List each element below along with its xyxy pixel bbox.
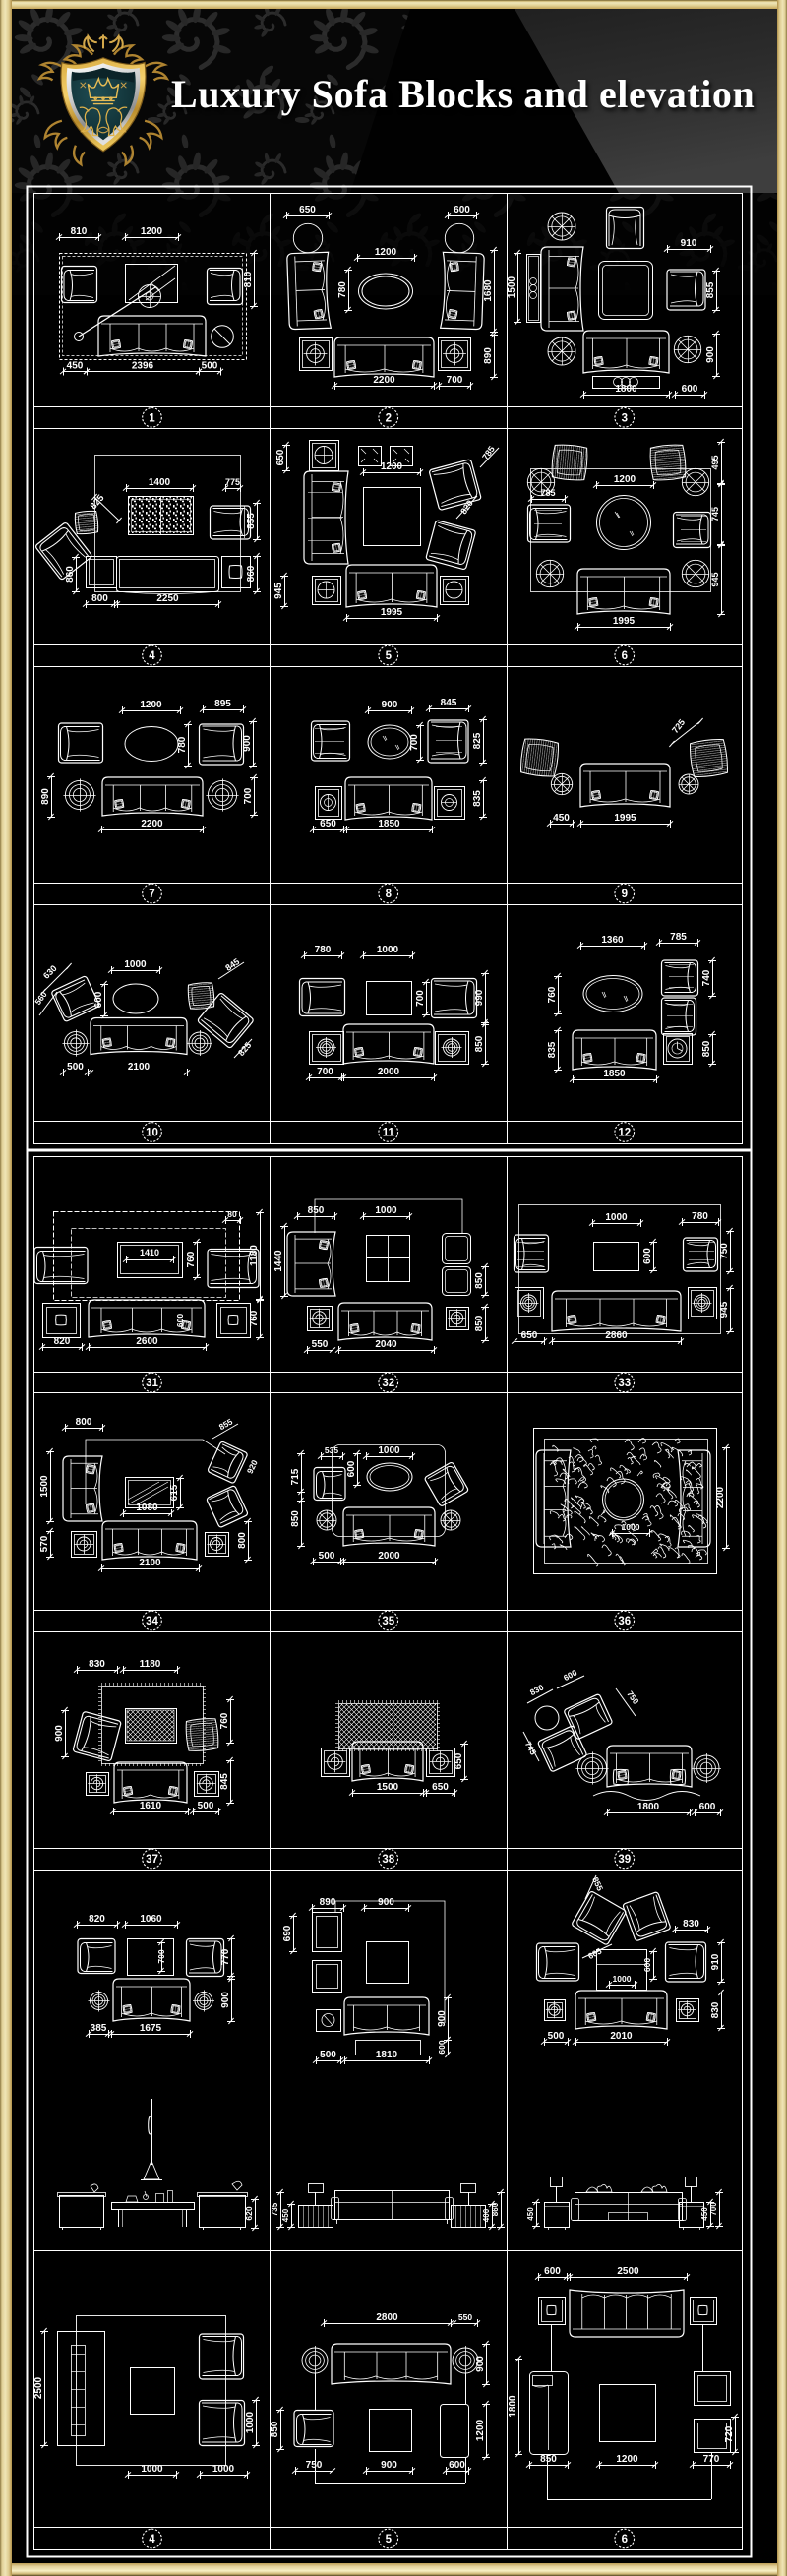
svg-text:750: 750 [625, 1689, 640, 1707]
svg-text:1800: 1800 [637, 1802, 660, 1812]
svg-text:2250: 2250 [156, 593, 179, 604]
svg-text:2000: 2000 [378, 1551, 400, 1562]
svg-text:32: 32 [382, 1378, 394, 1389]
svg-text:770: 770 [220, 1948, 231, 1965]
svg-text:850: 850 [290, 1510, 301, 1527]
svg-text:8: 8 [386, 889, 393, 900]
svg-text:745: 745 [523, 1740, 539, 1756]
svg-text:890: 890 [320, 1897, 336, 1908]
svg-text:825: 825 [89, 492, 107, 512]
svg-text:1000: 1000 [124, 959, 147, 970]
svg-text:600: 600 [437, 2040, 447, 2054]
svg-text:850: 850 [540, 2454, 557, 2465]
svg-text:650: 650 [275, 449, 286, 465]
svg-text:1200: 1200 [140, 700, 162, 710]
svg-text:1440: 1440 [273, 1250, 284, 1272]
svg-text:830: 830 [89, 1659, 105, 1670]
svg-text:1060: 1060 [140, 1914, 162, 1925]
svg-text:2200: 2200 [141, 819, 163, 829]
svg-text:895: 895 [214, 699, 231, 709]
svg-text:890: 890 [483, 347, 494, 364]
svg-text:500: 500 [202, 361, 218, 372]
svg-text:1200: 1200 [375, 247, 397, 258]
svg-text:570: 570 [39, 1535, 50, 1552]
svg-text:990: 990 [474, 989, 485, 1006]
svg-text:2800: 2800 [376, 2312, 398, 2323]
svg-text:785: 785 [670, 932, 687, 943]
svg-text:1200: 1200 [475, 2419, 486, 2441]
svg-text:12: 12 [618, 1128, 631, 1139]
svg-text:11: 11 [383, 1128, 395, 1139]
svg-text:1200: 1200 [381, 461, 403, 472]
svg-text:550: 550 [312, 1339, 329, 1350]
svg-text:1360: 1360 [601, 935, 624, 946]
svg-text:800: 800 [91, 593, 108, 604]
svg-text:900: 900 [378, 1897, 394, 1908]
svg-text:3: 3 [622, 412, 628, 424]
svg-text:850: 850 [270, 2421, 280, 2437]
svg-text:1800: 1800 [508, 2395, 518, 2418]
svg-text:1995: 1995 [381, 607, 403, 618]
svg-text:1000: 1000 [378, 1445, 400, 1456]
svg-text:600: 600 [346, 1460, 357, 1477]
svg-text:2100: 2100 [139, 1558, 161, 1568]
svg-text:650: 650 [320, 819, 336, 829]
svg-text:5: 5 [386, 2534, 393, 2545]
svg-text:1500: 1500 [39, 1475, 50, 1498]
svg-text:450: 450 [553, 813, 570, 824]
svg-text:600: 600 [562, 1667, 578, 1683]
svg-text:1995: 1995 [614, 813, 636, 824]
svg-text:850: 850 [474, 1315, 485, 1331]
svg-text:2: 2 [386, 412, 392, 424]
svg-text:690: 690 [282, 1925, 293, 1941]
svg-text:900: 900 [705, 346, 716, 363]
svg-text:700: 700 [709, 2202, 718, 2216]
svg-text:825: 825 [236, 1040, 253, 1058]
svg-text:560: 560 [32, 989, 48, 1007]
svg-text:1675: 1675 [140, 2023, 162, 2034]
svg-text:600: 600 [454, 205, 470, 215]
svg-text:900: 900 [242, 735, 253, 752]
svg-text:700: 700 [156, 1949, 166, 1963]
svg-text:600: 600 [175, 1314, 185, 1327]
svg-text:1400: 1400 [149, 477, 171, 488]
svg-text:2860: 2860 [605, 1330, 628, 1341]
svg-text:80: 80 [227, 1209, 237, 1219]
svg-text:1: 1 [149, 412, 155, 424]
svg-text:2100: 2100 [128, 1062, 151, 1073]
svg-text:1000: 1000 [245, 2411, 256, 2433]
svg-text:700: 700 [415, 990, 426, 1007]
svg-text:1680: 1680 [483, 279, 494, 302]
svg-text:855: 855 [217, 1416, 235, 1432]
svg-text:2010: 2010 [610, 2031, 633, 2042]
svg-text:700: 700 [243, 787, 254, 804]
svg-text:780: 780 [692, 1211, 708, 1222]
svg-text:1080: 1080 [136, 1503, 158, 1513]
svg-text:810: 810 [71, 226, 88, 237]
svg-text:910: 910 [681, 238, 697, 249]
svg-text:700: 700 [447, 375, 463, 386]
svg-text:1000: 1000 [622, 1522, 640, 1532]
svg-text:620: 620 [244, 2206, 254, 2220]
svg-text:1610: 1610 [140, 1801, 162, 1811]
svg-text:650: 650 [432, 1782, 449, 1793]
svg-text:500: 500 [319, 1551, 335, 1562]
svg-text:600: 600 [93, 991, 104, 1008]
svg-text:1410: 1410 [140, 1248, 159, 1257]
svg-text:2600: 2600 [136, 1336, 158, 1347]
svg-text:2500: 2500 [617, 2266, 639, 2277]
svg-text:770: 770 [703, 2454, 720, 2465]
svg-text:845: 845 [219, 1773, 230, 1790]
svg-text:1000: 1000 [212, 2464, 235, 2475]
svg-text:830: 830 [710, 2001, 721, 2018]
svg-text:910: 910 [710, 1953, 721, 1970]
svg-text:860: 860 [246, 565, 257, 582]
svg-text:535: 535 [325, 1445, 338, 1455]
svg-text:1000: 1000 [375, 1205, 397, 1216]
svg-text:450: 450 [526, 2207, 535, 2221]
svg-text:735: 735 [271, 2202, 279, 2216]
svg-text:740: 740 [701, 969, 712, 986]
svg-text:945: 945 [719, 1301, 730, 1318]
svg-text:600: 600 [699, 1802, 716, 1812]
svg-text:845: 845 [441, 698, 457, 708]
svg-text:800: 800 [76, 1417, 92, 1428]
svg-text:600: 600 [449, 2460, 465, 2471]
svg-text:845: 845 [223, 956, 241, 973]
svg-text:830: 830 [683, 1919, 699, 1930]
svg-text:850: 850 [701, 1040, 712, 1057]
svg-text:450: 450 [281, 2208, 290, 2222]
svg-text:850: 850 [474, 1272, 485, 1289]
svg-text:550: 550 [458, 2312, 472, 2322]
svg-text:9: 9 [622, 889, 628, 900]
svg-text:1995: 1995 [613, 616, 636, 627]
svg-text:760: 760 [547, 986, 558, 1003]
svg-text:780: 780 [315, 945, 332, 955]
svg-text:31: 31 [146, 1378, 158, 1389]
svg-text:1800: 1800 [615, 384, 637, 395]
svg-text:2200: 2200 [715, 1486, 726, 1508]
svg-text:860: 860 [65, 566, 76, 583]
svg-text:500: 500 [320, 2050, 336, 2060]
svg-text:750: 750 [306, 2460, 323, 2471]
svg-text:2040: 2040 [375, 1339, 397, 1350]
svg-text:890: 890 [40, 788, 51, 805]
svg-text:38: 38 [382, 1854, 394, 1866]
svg-text:860: 860 [491, 2202, 500, 2216]
svg-text:1850: 1850 [603, 1069, 626, 1079]
svg-text:1000: 1000 [613, 1974, 632, 1984]
svg-text:760: 760 [249, 1310, 260, 1326]
svg-text:900: 900 [381, 2460, 397, 2471]
svg-text:1500: 1500 [507, 276, 517, 298]
svg-text:900: 900 [475, 2356, 486, 2372]
svg-text:785: 785 [540, 488, 555, 498]
svg-text:835: 835 [547, 1041, 558, 1058]
svg-text:650: 650 [454, 1752, 464, 1769]
svg-text:720: 720 [724, 2425, 735, 2442]
svg-text:650: 650 [521, 1330, 538, 1341]
svg-text:1180: 1180 [140, 1659, 161, 1670]
svg-text:1000: 1000 [377, 945, 399, 955]
svg-text:1000: 1000 [141, 2464, 163, 2475]
svg-text:500: 500 [548, 2031, 565, 2042]
svg-text:900: 900 [54, 1725, 65, 1742]
svg-text:760: 760 [219, 1712, 230, 1729]
svg-text:945: 945 [273, 583, 284, 599]
svg-text:855: 855 [246, 513, 257, 529]
svg-text:1200: 1200 [616, 2454, 638, 2465]
svg-text:780: 780 [177, 736, 188, 753]
svg-text:39: 39 [618, 1854, 631, 1866]
svg-text:745: 745 [710, 507, 720, 521]
svg-text:945: 945 [710, 572, 720, 586]
svg-text:1500: 1500 [377, 1782, 399, 1793]
svg-text:700: 700 [409, 734, 420, 751]
svg-text:1200: 1200 [614, 474, 636, 485]
svg-text:785: 785 [480, 444, 497, 461]
svg-text:650: 650 [299, 205, 316, 215]
svg-text:825: 825 [472, 732, 483, 749]
svg-text:600: 600 [642, 1958, 652, 1972]
svg-text:7: 7 [149, 889, 154, 900]
svg-text:4: 4 [149, 650, 155, 662]
svg-text:2200: 2200 [373, 375, 395, 386]
svg-text:35: 35 [382, 1616, 394, 1627]
svg-text:1850: 1850 [378, 819, 400, 829]
svg-text:850: 850 [474, 1035, 485, 1052]
svg-text:600: 600 [682, 384, 698, 395]
svg-text:760: 760 [186, 1251, 197, 1267]
svg-text:400: 400 [482, 2208, 491, 2222]
svg-text:500: 500 [198, 1801, 214, 1811]
svg-text:725: 725 [670, 717, 687, 735]
svg-text:615: 615 [169, 1484, 180, 1501]
svg-text:2000: 2000 [378, 1067, 400, 1077]
svg-text:2396: 2396 [132, 361, 154, 372]
svg-text:1000: 1000 [605, 1212, 628, 1223]
svg-text:10: 10 [146, 1128, 158, 1139]
svg-text:6: 6 [622, 2534, 628, 2545]
svg-text:600: 600 [544, 2266, 561, 2277]
svg-text:750: 750 [719, 1243, 730, 1259]
svg-text:855: 855 [590, 1875, 605, 1892]
svg-text:4: 4 [149, 2534, 155, 2545]
svg-text:820: 820 [54, 1336, 71, 1347]
svg-text:800: 800 [237, 1532, 248, 1549]
svg-text:600: 600 [642, 1248, 653, 1264]
svg-text:850: 850 [308, 1205, 325, 1216]
svg-text:630: 630 [41, 963, 59, 981]
svg-text:835: 835 [472, 790, 483, 807]
svg-text:36: 36 [618, 1616, 631, 1627]
svg-text:385: 385 [91, 2023, 107, 2034]
svg-text:665: 665 [586, 1945, 603, 1961]
svg-text:900: 900 [437, 2010, 448, 2027]
svg-text:495: 495 [710, 455, 720, 469]
svg-text:810: 810 [243, 271, 254, 287]
svg-text:855: 855 [705, 281, 716, 298]
svg-text:900: 900 [220, 1992, 231, 2008]
svg-text:780: 780 [337, 281, 348, 298]
svg-text:500: 500 [67, 1062, 84, 1073]
svg-text:920: 920 [245, 1458, 260, 1475]
svg-text:450: 450 [67, 361, 84, 372]
svg-text:2500: 2500 [33, 2376, 44, 2399]
svg-text:1180: 1180 [249, 1245, 260, 1266]
svg-text:1810: 1810 [376, 2050, 398, 2060]
svg-text:715: 715 [290, 1468, 301, 1485]
svg-text:33: 33 [618, 1378, 631, 1389]
svg-text:37: 37 [146, 1854, 158, 1866]
svg-text:1200: 1200 [141, 226, 163, 237]
svg-text:34: 34 [146, 1616, 158, 1627]
svg-text:5: 5 [386, 650, 393, 662]
svg-text:450: 450 [700, 2207, 709, 2221]
svg-text:700: 700 [317, 1067, 333, 1077]
svg-text:820: 820 [89, 1914, 105, 1925]
svg-text:775: 775 [225, 477, 240, 487]
svg-text:6: 6 [622, 650, 628, 662]
svg-text:900: 900 [382, 700, 398, 710]
